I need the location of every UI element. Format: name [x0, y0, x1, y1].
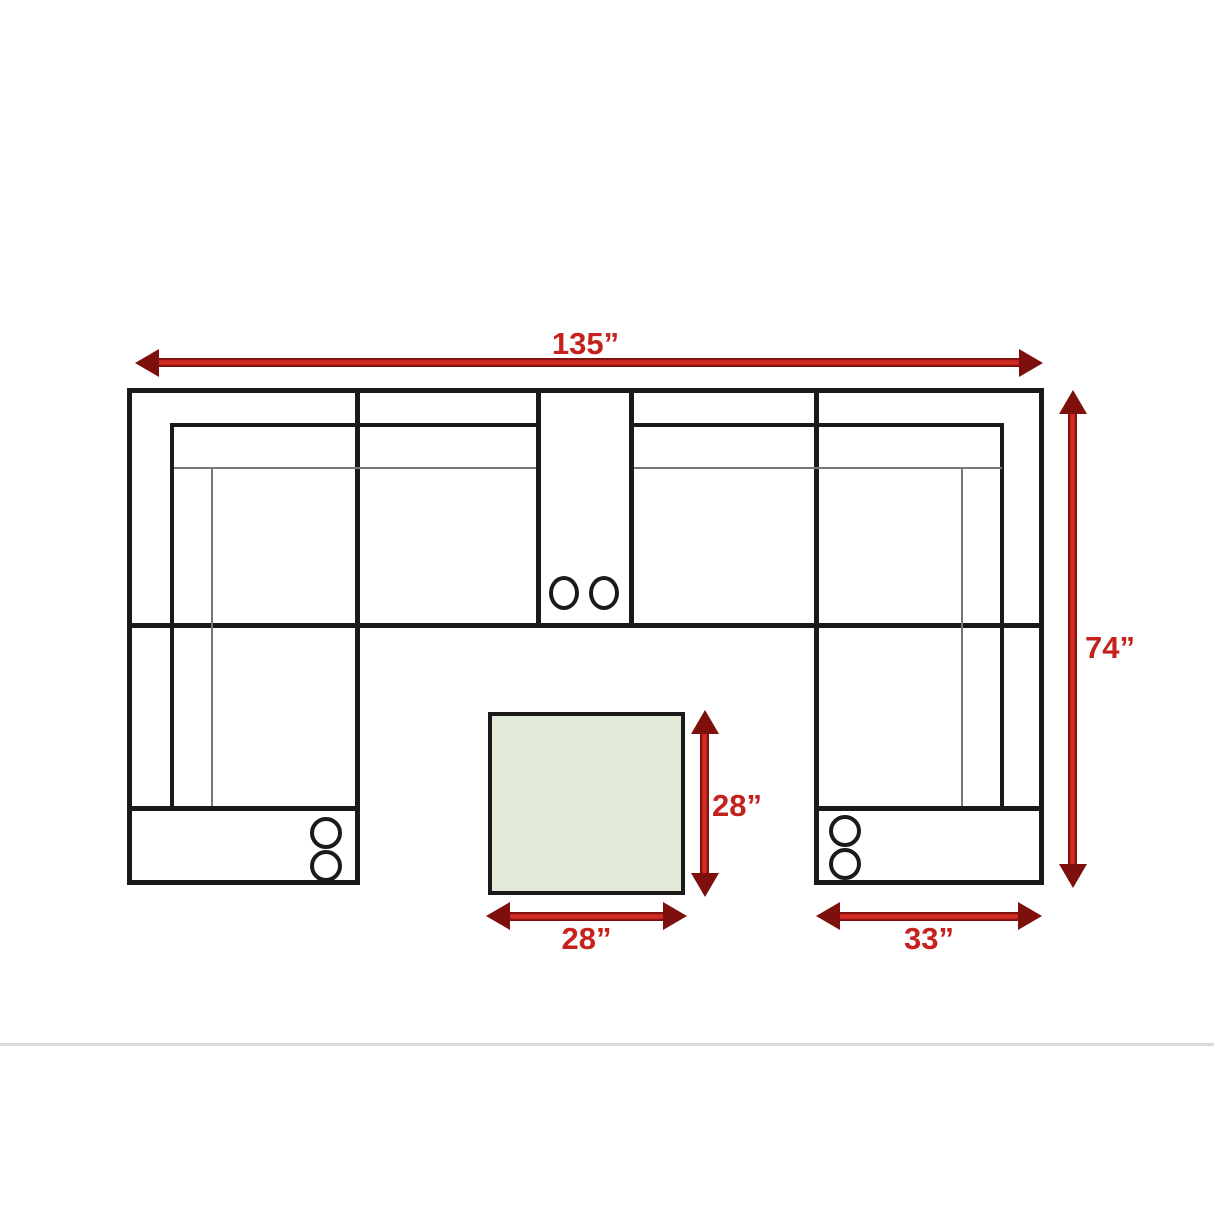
end-section-arrow-shaft — [836, 912, 1022, 921]
arrow-up-icon — [691, 710, 719, 734]
page-separator-line — [0, 1043, 1214, 1046]
right-footrest-cupholder-bottom-icon — [829, 848, 861, 880]
console-left-edge — [536, 388, 541, 628]
total-width-arrow-shaft — [156, 358, 1022, 367]
cushion-line-left-segment — [174, 467, 536, 469]
arrow-down-icon — [691, 873, 719, 897]
right-footrest-cupholder-top-icon — [829, 815, 861, 847]
cushion-line-right-segment — [634, 467, 1002, 469]
ottoman-width-label: 28” — [488, 921, 685, 957]
console-cupholder-right-icon — [589, 576, 619, 610]
ottoman-depth-arrow-shaft — [700, 730, 709, 876]
left-cushion-vertical-line — [211, 467, 213, 810]
arrow-right-icon — [1019, 349, 1043, 377]
sectional-floor-plan: 135” 74” 28” 28” 33” — [0, 0, 1214, 1214]
left-footrest-top-edge — [127, 806, 360, 811]
ottoman-depth-label: 28” — [712, 788, 762, 824]
arrow-left-icon — [135, 349, 159, 377]
right-footrest-top-edge — [814, 806, 1044, 811]
total-width-label: 135” — [127, 326, 1044, 362]
ottoman-width-arrow-shaft — [505, 912, 667, 921]
ottoman — [488, 712, 685, 895]
backrest-line-right-segment — [634, 423, 1004, 427]
arrow-right-icon — [663, 902, 687, 930]
left-footrest-cupholder-top-icon — [310, 817, 342, 849]
console-cupholder-left-icon — [549, 576, 579, 610]
right-footrest-bottom-edge — [814, 880, 1044, 885]
arrow-down-icon — [1059, 864, 1087, 888]
arrow-left-icon — [486, 902, 510, 930]
arrow-right-icon — [1018, 902, 1042, 930]
sofa-outer-top-edge — [127, 388, 1044, 393]
left-footrest-cupholder-bottom-icon — [310, 850, 342, 882]
right-armrest-inner-line — [1000, 423, 1004, 810]
backrest-line-left-segment — [170, 423, 536, 427]
arrow-up-icon — [1059, 390, 1087, 414]
total-depth-arrow-shaft — [1068, 411, 1077, 866]
total-depth-label: 74” — [1085, 630, 1135, 666]
right-cushion-vertical-line — [961, 467, 963, 810]
sofa-seat-front-line — [127, 623, 1044, 628]
arrow-left-icon — [816, 902, 840, 930]
left-armrest-inner-line — [170, 423, 174, 810]
end-section-width-label: 33” — [814, 921, 1044, 957]
